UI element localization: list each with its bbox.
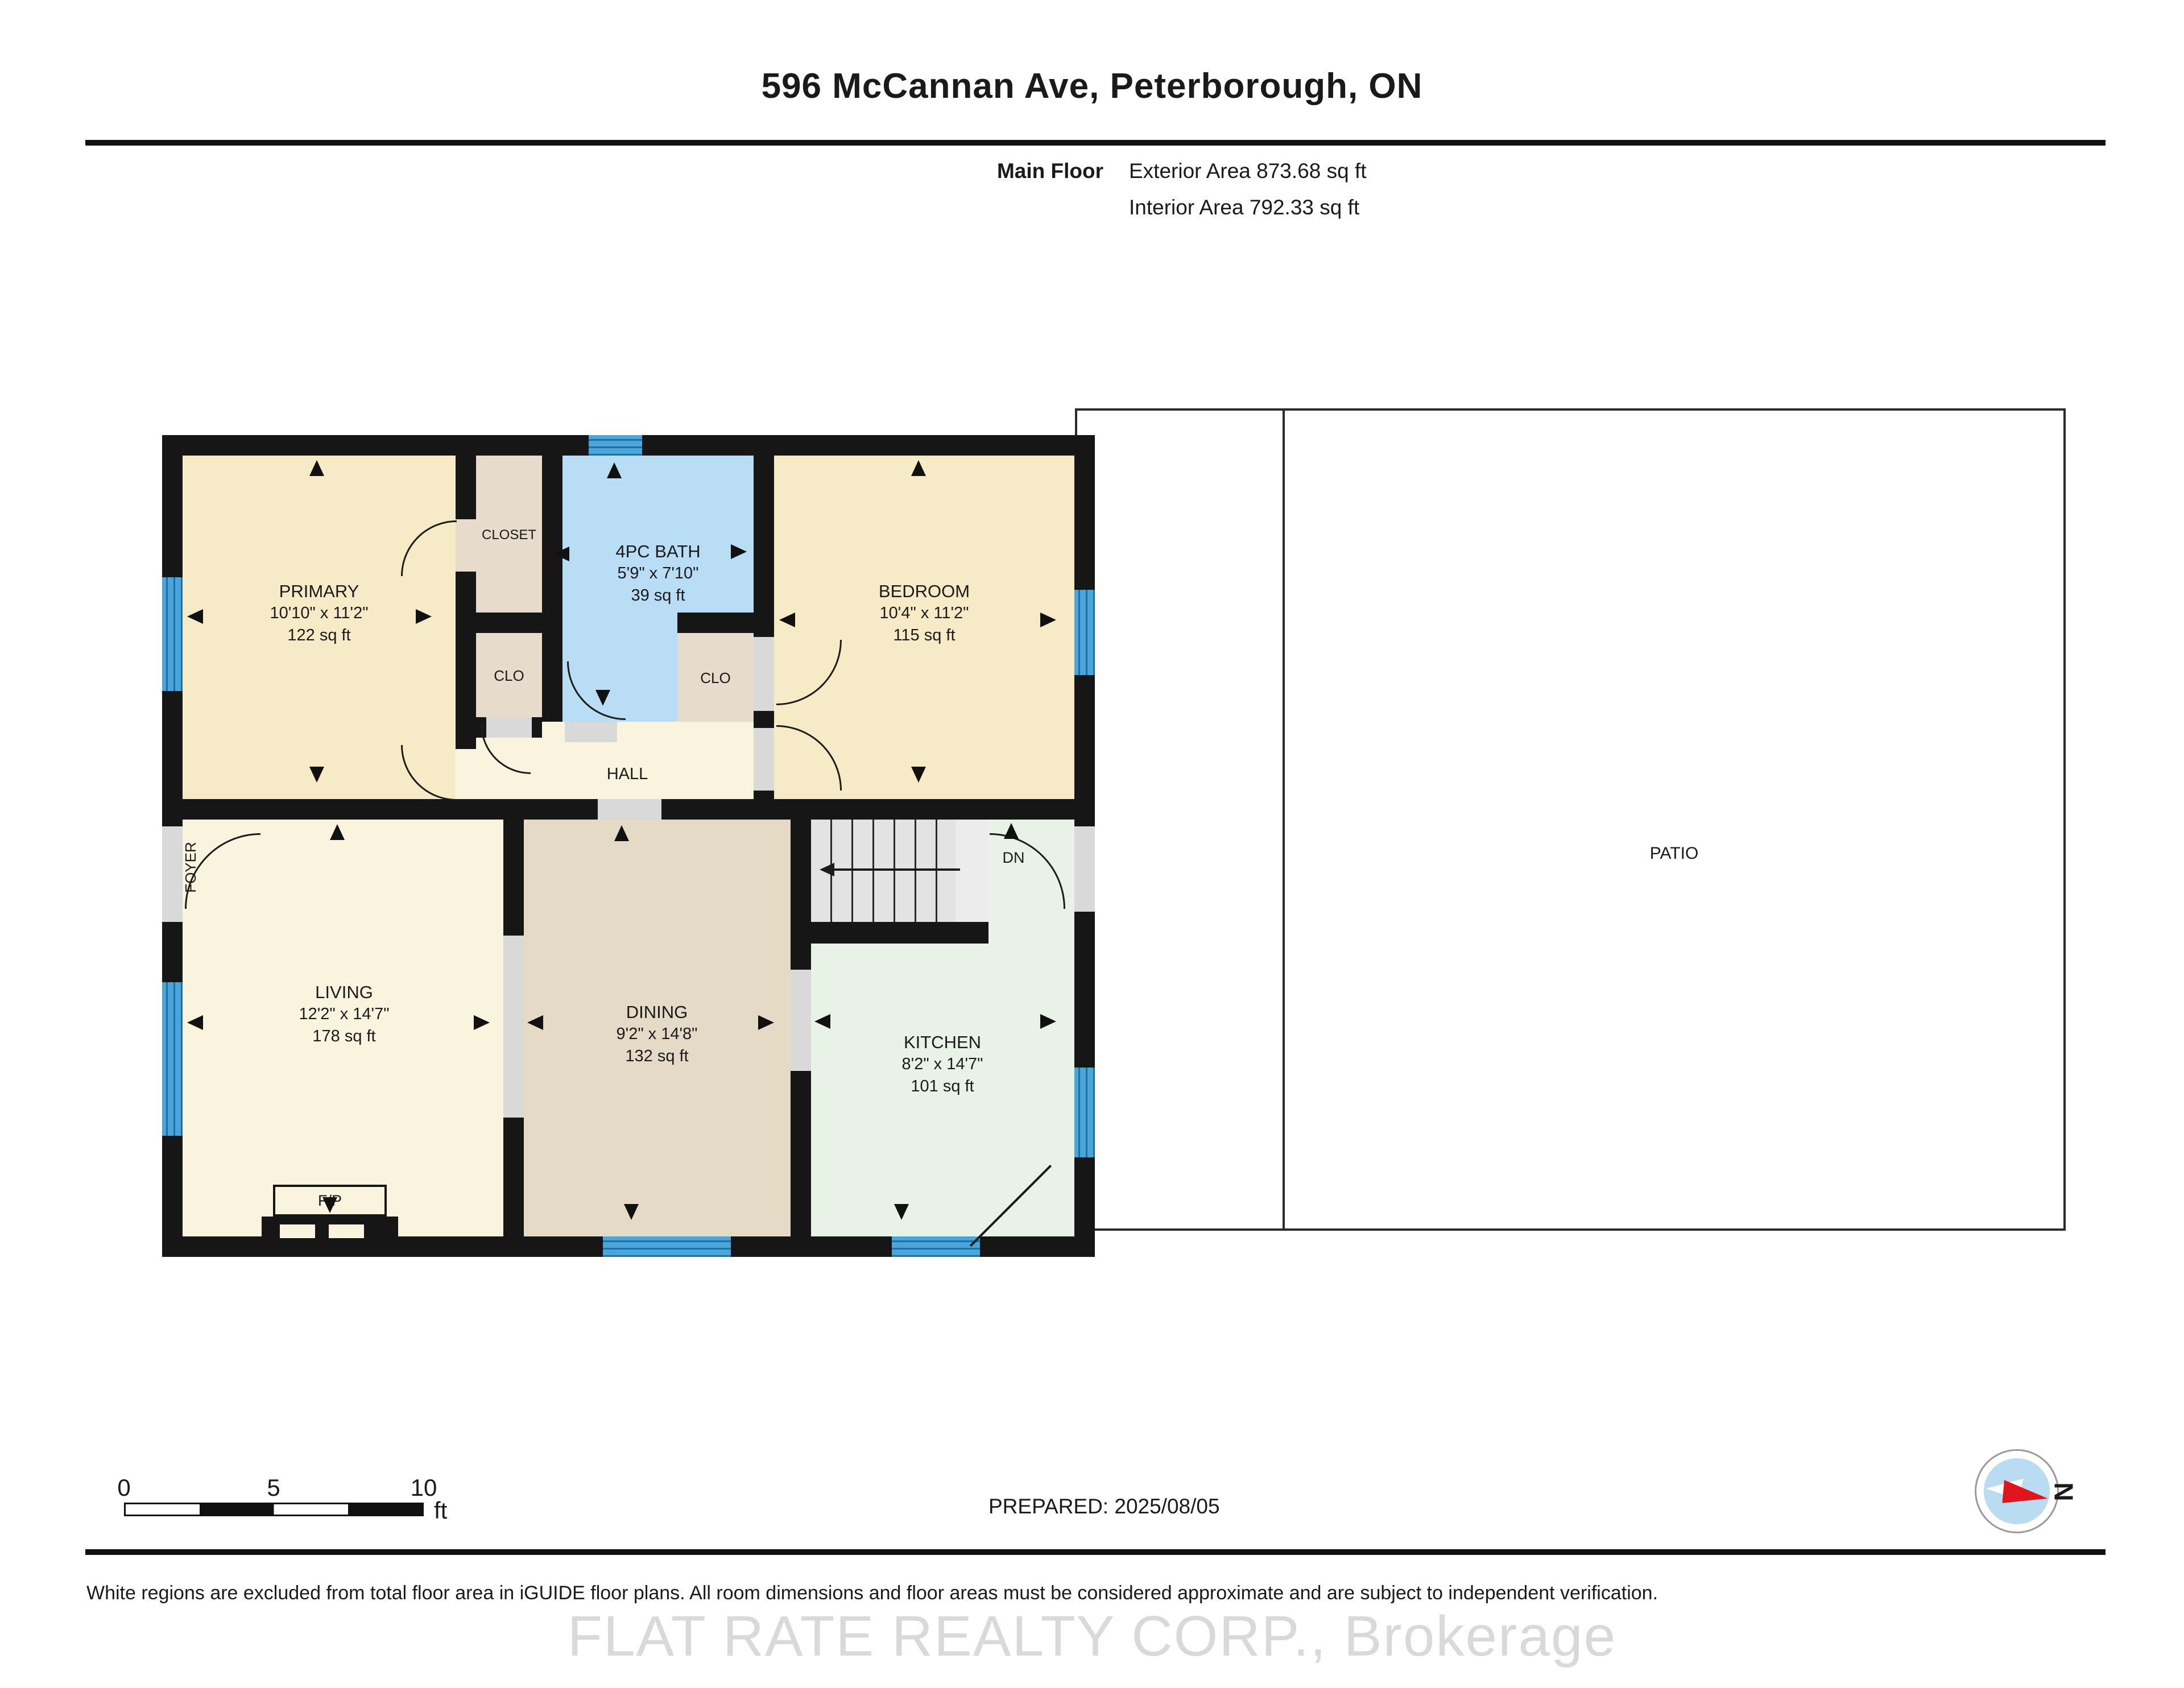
stairs-landing <box>955 820 988 922</box>
patio-label: PATIO <box>1283 844 2066 863</box>
direction-arrow <box>911 767 926 783</box>
window-kitchen-right <box>1074 1068 1095 1157</box>
brokerage-watermark: FLAT RATE REALTY CORP., Brokerage <box>0 1604 2184 1669</box>
direction-arrow <box>187 1015 203 1030</box>
foyer-label: FOYER <box>182 819 202 916</box>
direction-arrow <box>1040 1014 1056 1029</box>
floor-plan: F/P PRIMARY 10'10" x 11'2" 122 sq ft 4PC… <box>162 435 1095 1257</box>
bath-door-opening <box>565 722 617 742</box>
stairs-direction-arrow <box>820 863 834 876</box>
direction-arrow <box>1004 823 1019 839</box>
stairs-wall <box>811 922 988 944</box>
bedroom-door-opening <box>754 728 774 791</box>
footer-divider <box>85 1549 2106 1555</box>
direction-arrow <box>330 824 345 840</box>
direction-arrow <box>527 1015 543 1030</box>
direction-arrow <box>814 1014 830 1029</box>
direction-arrow <box>187 609 203 624</box>
fireplace-notch <box>329 1224 364 1238</box>
scale-bar: 0 5 10 ft <box>124 1474 488 1537</box>
direction-arrow <box>614 825 629 841</box>
room-label-bedroom: BEDROOM 10'4" x 11'2" 115 sq ft <box>810 580 1038 647</box>
interior-area: Interior Area 792.33 sq ft <box>1129 196 1359 220</box>
direction-arrow <box>309 767 324 783</box>
direction-arrow <box>894 1204 909 1220</box>
compass-north-label: N <box>2049 1482 2079 1501</box>
closet-label: CLOSET <box>466 527 552 543</box>
scale-tick-5: 5 <box>257 1474 291 1501</box>
room-label-kitchen: KITCHEN 8'2" x 14'7" 101 sq ft <box>829 1031 1056 1098</box>
window-bedroom-right <box>1074 590 1095 675</box>
direction-arrow <box>731 544 747 559</box>
bedroom-clo-door-opening <box>754 637 774 711</box>
direction-arrow <box>624 1204 639 1220</box>
room-label-living: LIVING 12'2" x 14'7" 178 sq ft <box>230 981 458 1048</box>
clo-label-primary: CLO <box>476 667 542 685</box>
primary-door-opening <box>456 749 476 799</box>
window-primary-left <box>162 577 183 691</box>
down-label: DN <box>988 849 1039 867</box>
dining-kitchen-opening <box>791 970 811 1071</box>
scale-bar-segments <box>124 1503 424 1516</box>
footer-disclaimer: White regions are excluded from total fl… <box>86 1582 1658 1604</box>
foyer-entry-opening <box>162 826 183 922</box>
direction-arrow <box>779 613 795 627</box>
window-kitchen-bottom <box>892 1236 980 1257</box>
direction-arrow <box>758 1015 774 1030</box>
compass-disc <box>1984 1458 2050 1524</box>
living-dining-opening <box>503 936 524 1118</box>
direction-arrow <box>322 1197 337 1213</box>
room-label-primary: PRIMARY 10'10" x 11'2" 122 sq ft <box>205 580 433 647</box>
stairs-direction-line <box>832 868 960 871</box>
exterior-area: Exterior Area 873.68 sq ft <box>1129 159 1367 183</box>
page-title: 596 McCannan Ave, Peterborough, ON <box>0 66 2184 106</box>
floor-name: Main Floor <box>876 159 1103 183</box>
header-divider <box>85 140 2106 146</box>
compass-needle-north <box>1984 1458 2050 1524</box>
direction-arrow <box>416 609 432 624</box>
direction-arrow <box>911 460 926 476</box>
scale-unit: ft <box>434 1497 447 1524</box>
clo-label-bedroom: CLO <box>677 669 754 687</box>
patio-area: PATIO <box>1075 408 2066 1231</box>
patio-divider-line <box>1283 411 1285 1228</box>
window-bath-top <box>589 435 642 456</box>
floor-plan-page: 596 McCannan Ave, Peterborough, ON Main … <box>0 0 2184 1688</box>
fireplace-notch <box>280 1224 315 1238</box>
window-dining-bottom <box>603 1236 731 1257</box>
window-living-left <box>162 982 183 1136</box>
prepared-date: PREPARED: 2025/08/05 <box>988 1495 1220 1519</box>
direction-arrow <box>595 690 610 706</box>
fireplace-base <box>262 1217 398 1238</box>
hall-dining-opening <box>598 799 661 820</box>
scale-tick-0: 0 <box>107 1474 141 1501</box>
room-label-dining: DINING 9'2" x 14'8" 132 sq ft <box>543 1001 771 1068</box>
direction-arrow <box>1040 613 1056 627</box>
direction-arrow <box>474 1015 490 1030</box>
compass-icon <box>1975 1449 2059 1533</box>
direction-arrow <box>309 460 324 476</box>
hall-label: HALL <box>542 765 713 784</box>
direction-arrow <box>607 462 622 478</box>
direction-arrow <box>553 547 569 561</box>
kitchen-patio-door-opening <box>1074 826 1095 912</box>
